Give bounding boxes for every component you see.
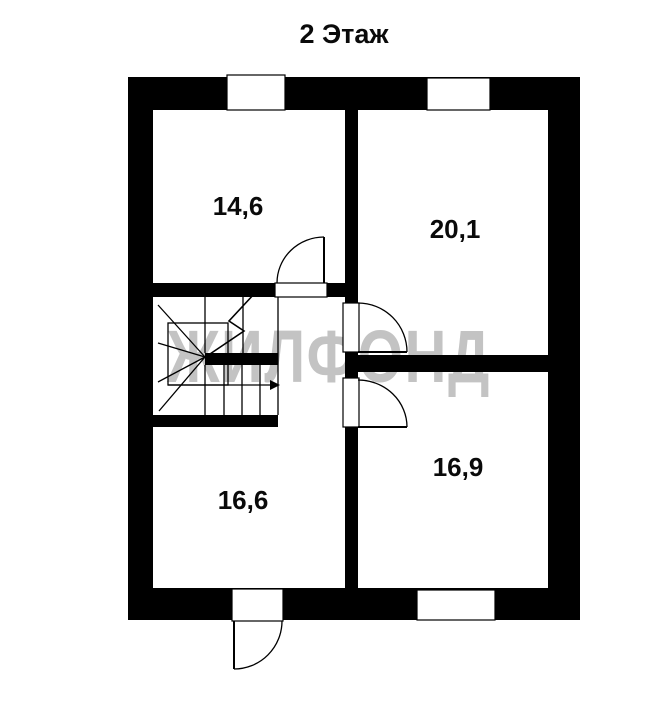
page-title: 2 Этаж (299, 19, 389, 49)
outer-wall-top (128, 77, 580, 110)
inner-wall-between-20-1-and-16-9 (345, 355, 548, 372)
inner-wall-stub-below-room-14-6 (327, 283, 347, 297)
room-area-label-20-1: 20,1 (430, 214, 481, 244)
inner-wall-below-stairs (153, 415, 278, 427)
inner-wall-central-upper (345, 108, 358, 303)
outer-wall-left (128, 77, 153, 620)
top-left-window (227, 75, 285, 110)
stair-flight-divider-bar (205, 353, 278, 365)
room-16-9-door-opening (343, 378, 359, 427)
exterior-door-opening (232, 589, 283, 621)
outer-wall-right (548, 77, 580, 620)
room-area-label-16-9: 16,9 (433, 452, 484, 482)
inner-wall-central-lower (345, 427, 358, 588)
top-right-window (427, 78, 490, 110)
floor-plan-drawing: 2 Этаж ЖИЛФОНД (0, 0, 659, 714)
inner-wall-below-room-14-6 (153, 283, 275, 297)
bottom-window (417, 590, 495, 620)
room-20-1-door-opening (343, 303, 359, 352)
room-area-label-16-6: 16,6 (218, 485, 269, 515)
room-14-6-door-opening (275, 283, 327, 297)
floor-plan-page: 2 Этаж ЖИЛФОНД (0, 0, 659, 714)
room-area-label-14-6: 14,6 (213, 191, 264, 221)
outer-wall-bottom (128, 588, 580, 620)
